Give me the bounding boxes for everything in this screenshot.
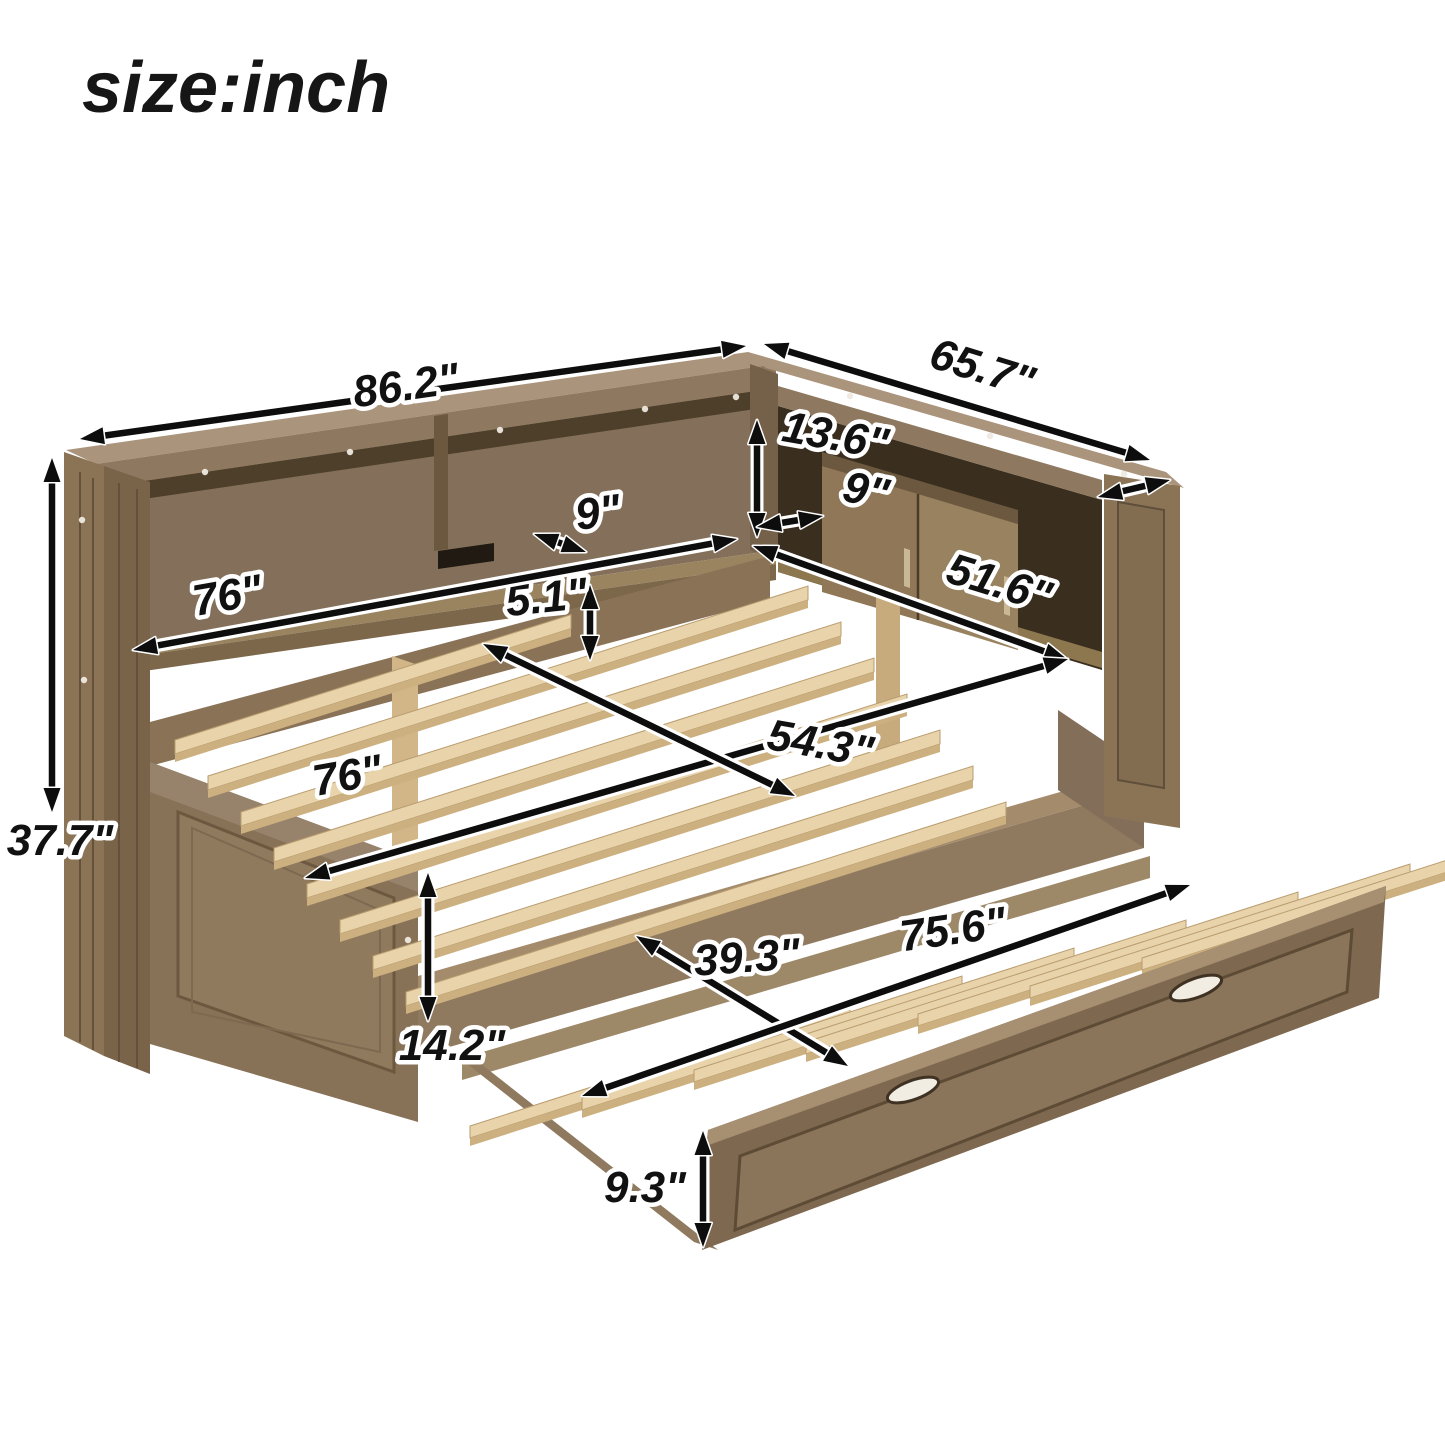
left-end-pillar-inner (104, 466, 150, 1074)
arrowhead (44, 458, 61, 482)
right-pillar-panel (1118, 502, 1164, 788)
dim-label-shelf-depth-left: 9" (572, 485, 625, 540)
bed-dimension-drawing: size:inch (0, 0, 1445, 1445)
arrowhead (1125, 445, 1150, 461)
dim-label-total-height: 37.7" (7, 816, 115, 865)
right-end-pillar (1104, 474, 1180, 828)
dim-label-trundle-width: 39.3" (692, 929, 803, 985)
shelf-divider (434, 414, 448, 551)
arrowhead (420, 873, 437, 897)
arrowhead (80, 427, 105, 444)
dimension-diagram: size:inch (0, 0, 1445, 1445)
dim-label-trundle-panel-height: 9.3" (604, 1163, 687, 1212)
arrowhead (1165, 885, 1190, 901)
dim-trundle-panel-height: 9.3" (604, 1131, 712, 1247)
door-handle-groove-left (904, 548, 910, 588)
left-end-pillar-outer (64, 452, 104, 1056)
arrowhead (764, 343, 789, 359)
page-title: size:inch (82, 48, 390, 128)
arrowhead (582, 1080, 607, 1096)
arrowhead (44, 788, 61, 812)
bed-support-leg-2 (876, 590, 900, 758)
arrowhead (1043, 657, 1068, 673)
dim-label-bed-frame-height: 14.2" (399, 1021, 507, 1070)
